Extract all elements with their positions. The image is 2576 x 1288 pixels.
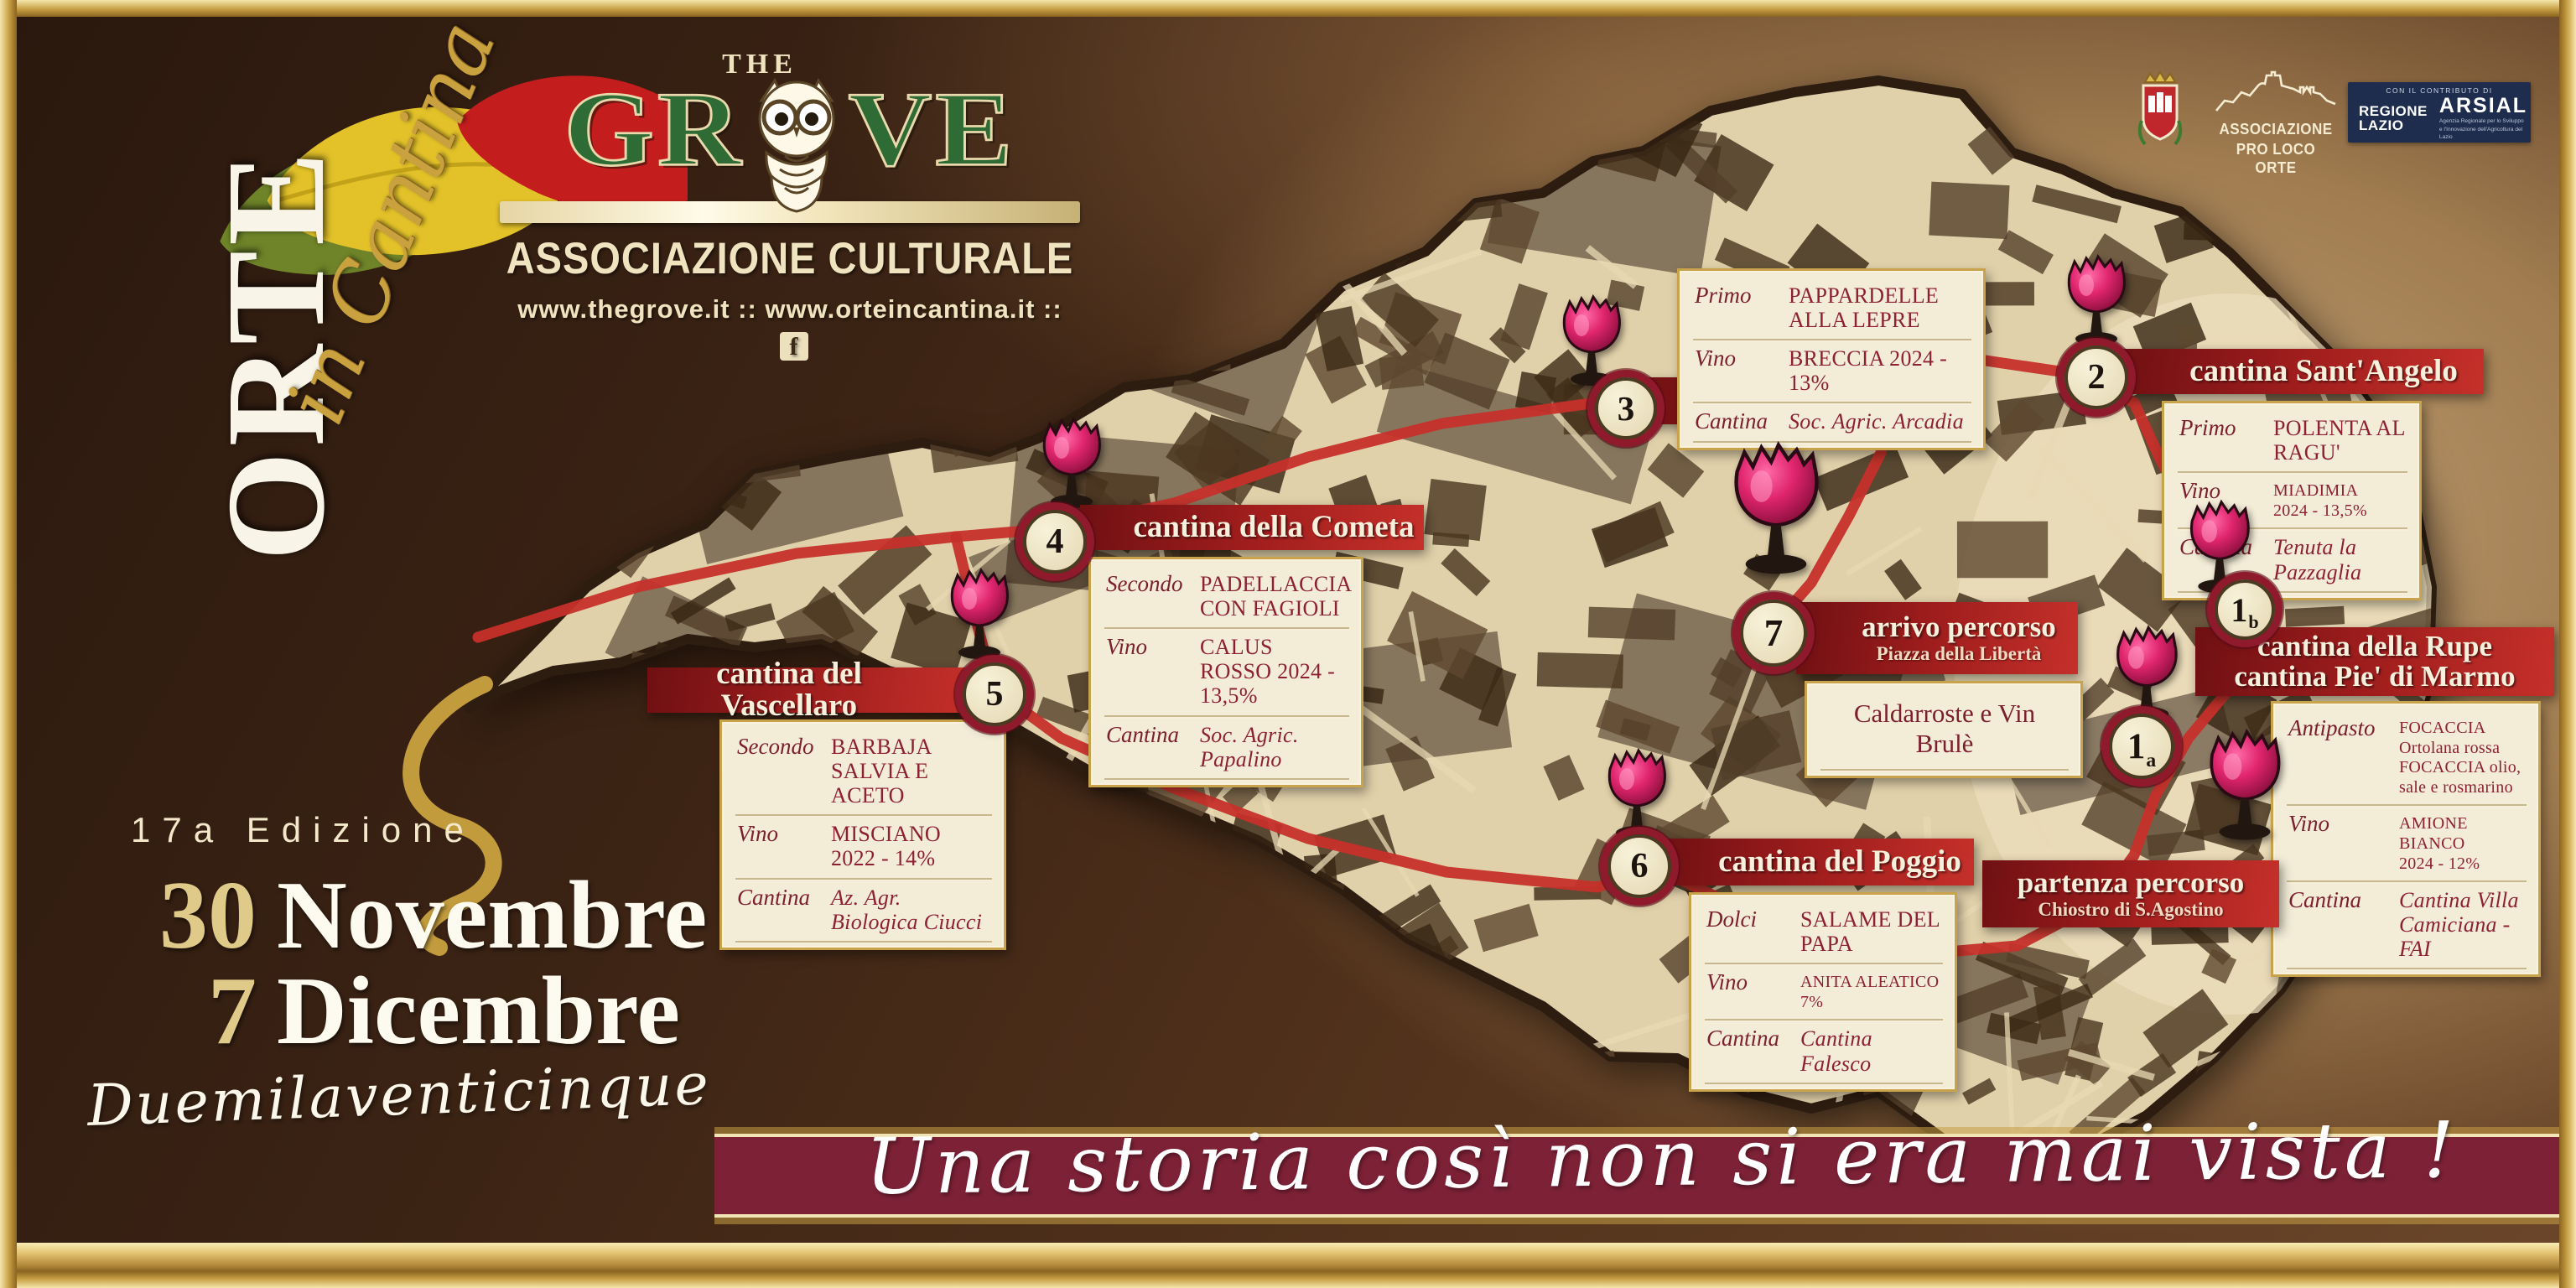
stop-name-bar-poggio: cantina del Poggio [1662,839,1974,885]
menu-row: VinoMISCIANO 2022 - 14% [735,816,992,879]
menu-card-santangelo: PrimoPOLENTA AL RAGU'VinoMIADIMIA 2024 -… [2162,401,2422,600]
menu-row-label: Primo [2179,416,2262,441]
stop-name: partenza percorso [2018,868,2245,898]
menu-card-rupe: AntipastoFOCACCIA Ortolana rossa FOCACCI… [2271,701,2541,977]
stop-rupe: cantina della Rupe cantina Pie' di Marmo… [0,0,2576,1288]
stop-subtitle: Piazza della Libertà [1877,644,2042,664]
menu-row-label: Cantina [1706,1026,1789,1052]
stop-partenza: partenza percorsoChiostro di S.Agostino [0,0,2576,1288]
wine-glass-icon [2185,498,2254,595]
menu-row-label: Secondo [737,735,819,760]
wine-glass-icon [1558,293,1625,387]
menu-card-arrivo: Caldarroste e Vin Brulè [1805,681,2083,778]
menu-card-poggio: DolciSALAME DEL PAPAVinoANITA ALEATICO 7… [1689,892,1957,1092]
stop-number-badge-1b: 1b [2215,579,2275,640]
wine-glass-icon [946,567,1013,661]
stop-santangelo: cantina Sant'AngeloPrimoPOLENTA AL RAGU'… [0,0,2576,1288]
menu-card-cometa: SecondoPADELLACCIA CON FAGIOLIVinoCALUS … [1088,557,1363,787]
menu-row-label: Secondo [1106,572,1188,597]
menu-row-value: FOCACCIA Ortolana rossa FOCACCIA olio, s… [2399,716,2525,797]
stop-number-badge-7: 7 [1740,600,1807,667]
menu-row-value: Soc. Agric. Papalino [1200,723,1348,771]
stop-start_a: 1a [0,0,2576,1288]
stop-name-bar-vascellaro: cantina del Vascellaro [647,667,974,713]
stop-name-bar-cometa: cantina della Cometa [1080,505,1424,550]
menu-row: CantinaCantina Falesco [1705,1021,1943,1083]
menu-row-value: MISCIANO 2022 - 14% [831,822,990,870]
menu-card-porcini: PrimoPAPPARDELLE ALLA LEPREVinoBRECCIA 2… [1677,268,1986,450]
menu-row: CantinaTenuta la Pazzaglia [2178,529,2407,592]
menu-row-value: ANITA ALEATICO 7% [1800,970,1941,1012]
stop-number-badge-4: 4 [1023,510,1087,574]
menu-row-label: Vino [1706,970,1789,995]
menu-row-value: Cantina Falesco [1800,1026,1941,1075]
menu-row-label: Vino [2179,479,2262,504]
stop-vascellaro: cantina del VascellaroSecondoBARBAJA SAL… [0,0,2576,1288]
tagline-banner: Una storia così non si era mai vista ! [714,1134,2559,1218]
menu-row: SecondoPADELLACCIA CON FAGIOLI [1104,566,1349,629]
menu-row-value: BARBAJA SALVIA E ACETO [831,735,990,808]
menu-row: SecondoBARBAJA SALVIA E ACETO [735,729,992,816]
stop-porcini: cantina PorciniPrimoPAPPARDELLE ALLA LEP… [0,0,2576,1288]
menu-row-label: Cantina [2179,535,2262,560]
stop-name-bar-arrivo: arrivo percorsoPiazza della Libertà [1796,602,2078,674]
stop-number-badge-5: 5 [963,662,1026,726]
menu-row-label: Cantina [737,885,819,911]
wine-glass-icon [1727,439,1825,577]
frame-bottom [0,1271,2576,1288]
stop-name: cantina del Vascellaro [647,658,931,723]
menu-row-value: SALAME DEL PAPA [1800,907,1941,956]
stop-name-bar-porcini: cantina Porcini [1644,377,1957,424]
menu-row: CantinaAz. Agr. Biologica Ciucci [735,880,992,943]
frame-left [0,0,17,1288]
menu-row: CantinaSoc. Agric. Arcadia [1693,403,1971,443]
stop-number-badge-3: 3 [1595,377,1657,439]
menu-row: CantinaCantina Villa Camiciana - FAI [2287,882,2527,969]
stop-name: cantina della Cometa [1133,512,1414,543]
menu-row: VinoCALUS ROSSO 2024 - 13,5% [1104,629,1349,716]
menu-row-value: Soc. Agric. Arcadia [1789,409,1970,434]
wine-glass-icon [2204,728,2286,842]
menu-row-value: PADELLACCIA CON FAGIOLI [1200,572,1352,621]
stop-name: arrivo percorso [1862,612,2056,642]
menu-row-value: Az. Agr. Biologica Ciucci [831,885,990,934]
stop-cometa: cantina della CometaSecondoPADELLACCIA C… [0,0,2576,1288]
menu-simple-text: Caldarroste e Vin Brulè [1820,690,2069,771]
stop-name-bar-santangelo: cantina Sant'Angelo [2120,349,2484,394]
menu-row-value: AMIONE BIANCO 2024 - 12% [2399,812,2525,874]
stop-arrivo: arrivo percorsoPiazza della LibertàCalda… [0,0,2576,1288]
menu-row-value: POLENTA AL RAGU' [2273,416,2406,465]
menu-row-label: Vino [737,822,819,847]
menu-row: PrimoPAPPARDELLE ALLA LEPRE [1693,278,1971,340]
stop-number-badge-1a: 1a [2109,714,2174,779]
gold-bottom-band [0,1243,2576,1273]
wine-glass-icon [1038,416,1105,510]
menu-row-value: Cantina Villa Camiciana - FAI [2399,888,2525,961]
frame-top [0,0,2576,17]
wine-glass-icon [1603,747,1670,841]
stop-name: cantina Porcini [1722,385,1924,417]
menu-row-label: Cantina [2288,888,2387,913]
menu-row: CantinaSoc. Agric. Papalino [1104,717,1349,780]
stop-name: cantina della Rupe cantina Pie' di Marmo [2234,631,2515,693]
menu-row: VinoMIADIMIA 2024 - 13,5% [2178,473,2407,529]
stop-name-bar-partenza: partenza percorsoChiostro di S.Agostino [1982,860,2279,927]
menu-row-value: PAPPARDELLE ALLA LEPRE [1789,283,1970,332]
route-stops-layer: cantina PorciniPrimoPAPPARDELLE ALLA LEP… [0,0,2576,1288]
stop-number-badge-6: 6 [1607,834,1671,898]
menu-row: VinoANITA ALEATICO 7% [1705,964,1943,1021]
stop-subtitle: Chiostro di S.Agostino [2038,900,2223,920]
wine-glass-icon [2063,253,2130,347]
menu-row-value: MIADIMIA 2024 - 13,5% [2273,479,2406,521]
menu-row-value: Tenuta la Pazzaglia [2273,535,2406,584]
menu-row-label: Antipasto [2288,716,2387,741]
menu-row: VinoBRECCIA 2024 - 13% [1693,340,1971,403]
menu-card-vascellaro: SecondoBARBAJA SALVIA E ACETOVinoMISCIAN… [719,719,1006,950]
menu-row-label: Cantina [1106,723,1188,748]
menu-row-label: Vino [1106,635,1188,660]
menu-row-label: Dolci [1706,907,1789,932]
menu-row-label: Primo [1695,283,1777,309]
menu-row-value: BRECCIA 2024 - 13% [1789,346,1970,395]
menu-row-label: Vino [2288,812,2387,837]
stop-name-bar-rupe: cantina della Rupe cantina Pie' di Marmo [2195,627,2554,696]
menu-row: AntipastoFOCACCIA Ortolana rossa FOCACCI… [2287,710,2527,806]
menu-row-label: Cantina [1695,409,1777,434]
frame-right [2559,0,2576,1288]
stop-number-badge-2: 2 [2064,345,2128,409]
menu-row-value: CALUS ROSSO 2024 - 13,5% [1200,635,1348,708]
stop-name: cantina Sant'Angelo [2189,356,2458,387]
menu-row: VinoAMIONE BIANCO 2024 - 12% [2287,806,2527,882]
stop-name: cantina del Poggio [1718,846,1961,878]
menu-row: PrimoPOLENTA AL RAGU' [2178,410,2407,473]
poster-root: ORTE in Cantina THE GR VE ASSOCI [0,0,2576,1288]
menu-row-label: Vino [1695,346,1777,371]
stop-poggio: cantina del PoggioDolciSALAME DEL PAPAVi… [0,0,2576,1288]
menu-row: DolciSALAME DEL PAPA [1705,901,1943,964]
wine-glass-icon [2111,624,2182,723]
tagline-text: Una storia così non si era mai vista ! [764,1104,2559,1213]
